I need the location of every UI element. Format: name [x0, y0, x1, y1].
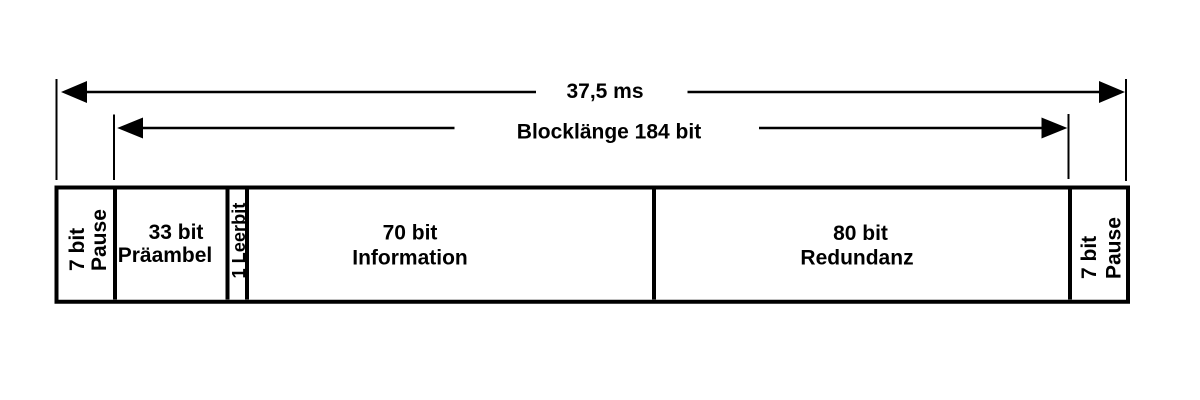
svg-text:Pause: Pause [1103, 217, 1126, 279]
svg-text:1 Leerbit: 1 Leerbit [229, 203, 249, 279]
svg-text:Redundanz: Redundanz [800, 247, 913, 270]
svg-text:Pause: Pause [88, 209, 111, 271]
svg-text:Information: Information [352, 247, 468, 270]
svg-text:Präambel: Präambel [118, 244, 213, 267]
svg-text:37,5 ms: 37,5 ms [566, 80, 643, 103]
svg-text:7 bit: 7 bit [1078, 236, 1101, 279]
svg-text:7 bit: 7 bit [66, 228, 89, 271]
svg-text:70 bit: 70 bit [383, 222, 438, 245]
svg-text:33 bit: 33 bit [149, 221, 204, 244]
svg-text:80 bit: 80 bit [833, 222, 888, 245]
svg-text:Blocklänge 184 bit: Blocklänge 184 bit [517, 121, 701, 144]
